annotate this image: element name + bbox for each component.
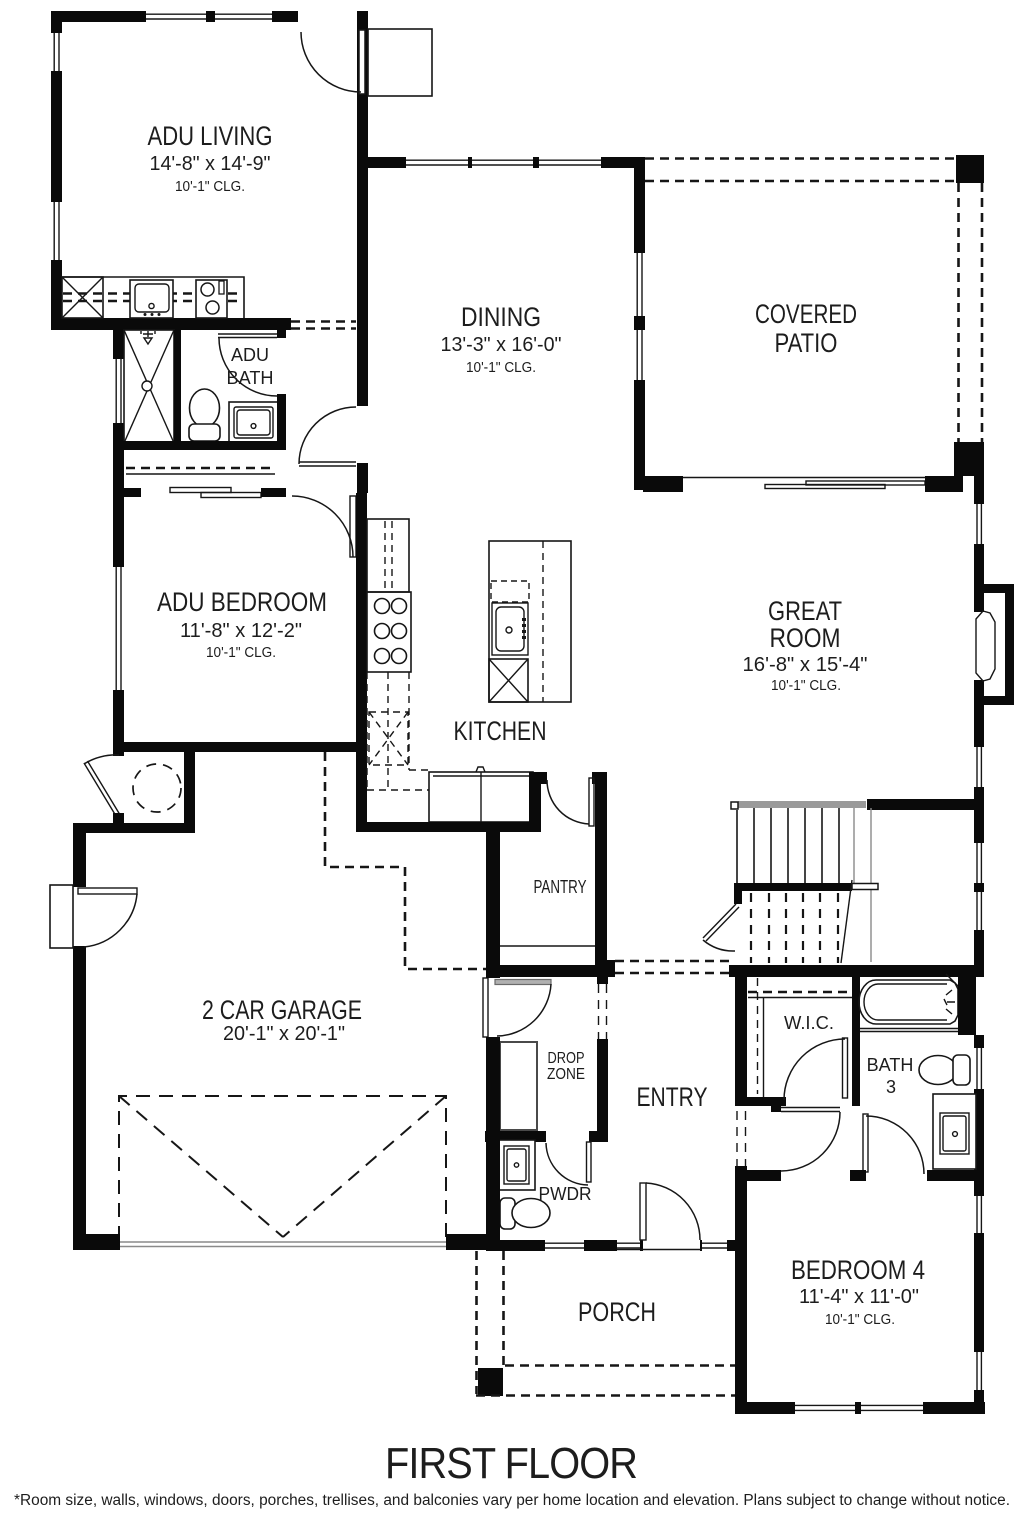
svg-text:KITCHEN: KITCHEN [454,716,547,746]
svg-text:ROOM: ROOM [770,623,841,653]
svg-text:DINING: DINING [461,302,541,332]
svg-text:16'-8" x 15'-4": 16'-8" x 15'-4" [743,654,868,676]
svg-text:10'-1" CLG.: 10'-1" CLG. [466,360,536,376]
svg-text:20'-1" x 20'-1": 20'-1" x 20'-1" [223,1023,345,1045]
svg-text:ADU BEDROOM: ADU BEDROOM [157,587,327,617]
svg-text:ADU LIVING: ADU LIVING [148,121,273,151]
svg-text:GREAT: GREAT [768,596,842,626]
svg-text:DROP: DROP [548,1050,585,1067]
svg-text:W.I.C.: W.I.C. [784,1013,834,1033]
svg-text:PANTRY: PANTRY [534,877,587,897]
svg-text:ZONE: ZONE [547,1066,585,1083]
svg-text:11'-4" x 11'-0": 11'-4" x 11'-0" [799,1286,919,1308]
svg-text:*Room size, walls, windows, do: *Room size, walls, windows, doors, porch… [14,1492,1010,1509]
svg-text:BATH: BATH [867,1055,914,1075]
svg-text:2 CAR GARAGE: 2 CAR GARAGE [202,995,362,1025]
svg-text:10'-1" CLG.: 10'-1" CLG. [175,179,245,195]
svg-text:FIRST FLOOR: FIRST FLOOR [385,1439,637,1488]
svg-text:10'-1" CLG.: 10'-1" CLG. [825,1312,895,1328]
svg-text:14'-8" x 14'-9": 14'-8" x 14'-9" [150,153,271,175]
svg-text:ENTRY: ENTRY [637,1082,708,1112]
svg-text:11'-8" x 12'-2": 11'-8" x 12'-2" [180,620,302,642]
svg-text:PATIO: PATIO [775,328,838,358]
svg-text:PWDR: PWDR [539,1184,592,1204]
svg-text:COVERED: COVERED [755,299,857,329]
svg-text:3: 3 [886,1077,896,1097]
svg-text:ADU: ADU [231,345,269,365]
svg-text:PORCH: PORCH [578,1297,656,1327]
svg-text:10'-1" CLG.: 10'-1" CLG. [771,678,841,694]
svg-text:10'-1" CLG.: 10'-1" CLG. [206,645,276,661]
svg-text:13'-3" x 16'-0": 13'-3" x 16'-0" [441,334,562,356]
svg-text:BATH: BATH [227,368,274,388]
svg-text:BEDROOM 4: BEDROOM 4 [791,1255,925,1285]
